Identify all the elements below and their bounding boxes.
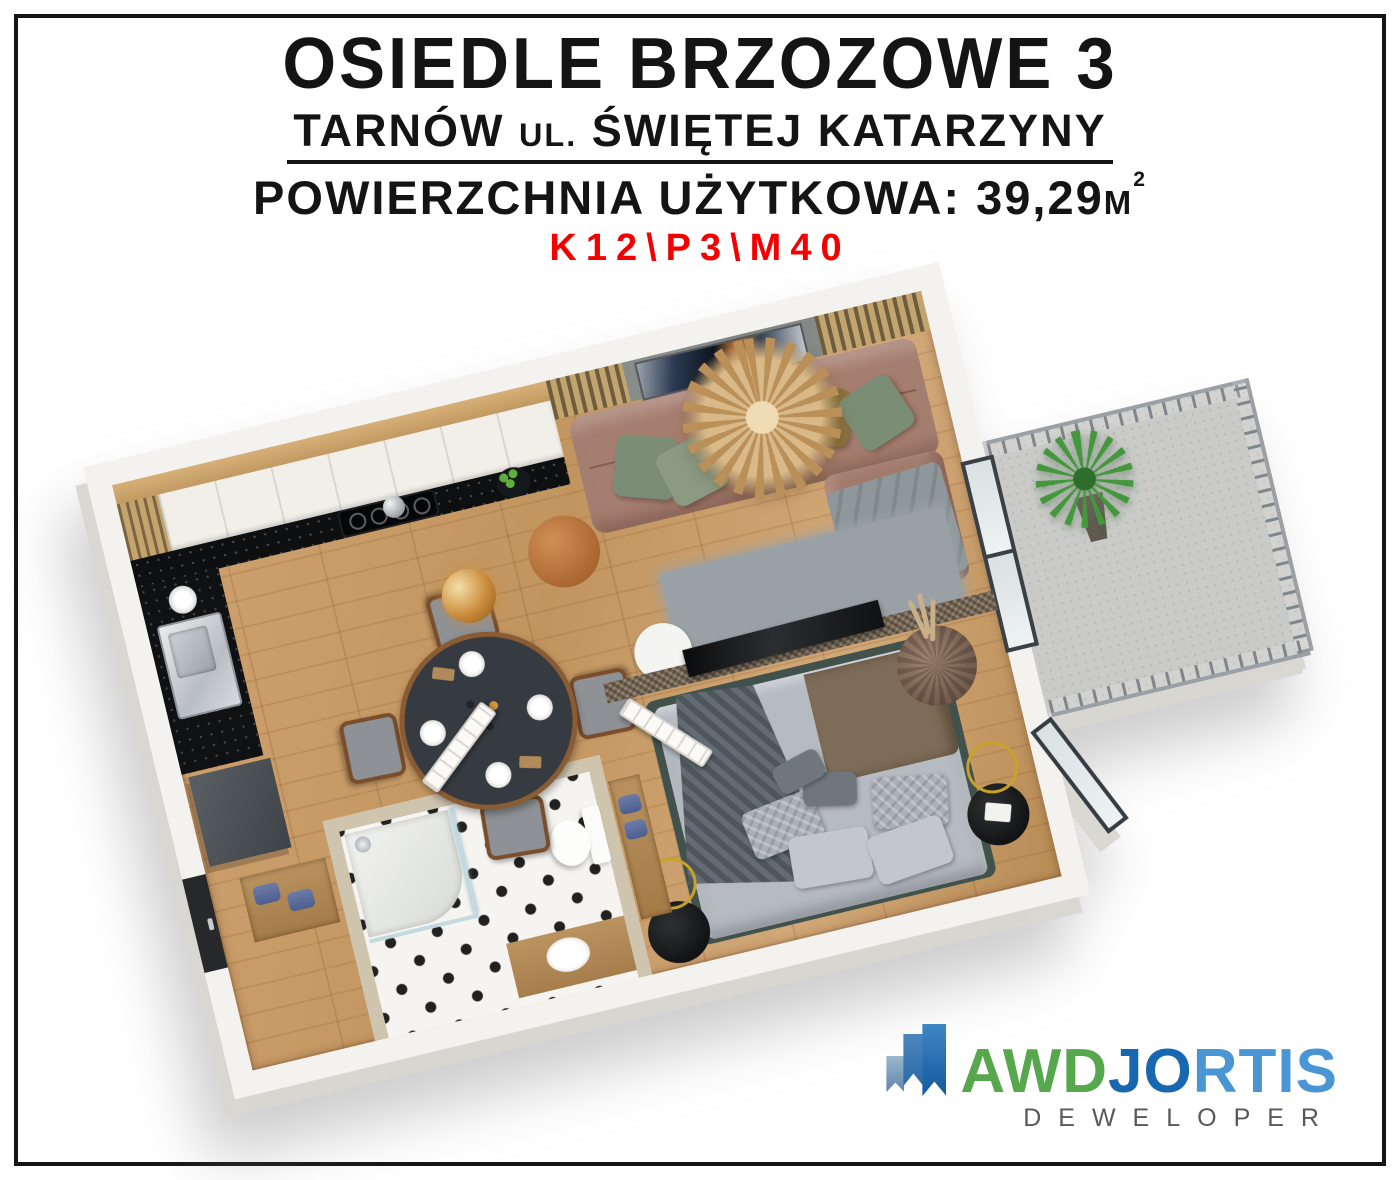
burner-icon bbox=[412, 496, 432, 516]
brand-name: AWDJORTIS bbox=[960, 1043, 1338, 1102]
plate bbox=[417, 717, 448, 748]
plate bbox=[483, 759, 514, 790]
flag-shape bbox=[886, 1056, 904, 1092]
developer-logo: AWDJORTIS DEWELOPER bbox=[908, 1024, 1338, 1134]
plate bbox=[456, 648, 487, 679]
flag-shape bbox=[903, 1034, 923, 1086]
bedside-book bbox=[984, 802, 1011, 822]
flag-shape bbox=[922, 1024, 946, 1096]
floorplan-scene bbox=[18, 18, 1382, 1162]
brand-part-rtis: RTIS bbox=[1193, 1037, 1338, 1106]
apple bbox=[505, 478, 516, 489]
apartment-3d-view bbox=[83, 197, 1363, 1100]
stepped-flags-growth-icon bbox=[886, 1024, 952, 1102]
burner-icon bbox=[348, 511, 368, 531]
poster-border: OSIEDLE BRZOZOWE 3 TARNÓW UL. ŚWIĘTEJ KA… bbox=[14, 14, 1386, 1166]
dining-chair bbox=[338, 711, 408, 785]
brand-part-jo: JO bbox=[1108, 1037, 1193, 1106]
bottle bbox=[465, 700, 475, 710]
brand-part-awd: AWD bbox=[960, 1037, 1108, 1106]
blue-towel bbox=[617, 793, 643, 816]
plate bbox=[524, 692, 555, 723]
brand-subtitle: DEWELOPER bbox=[908, 1104, 1338, 1133]
napkin bbox=[519, 756, 541, 769]
blue-towel bbox=[623, 818, 649, 841]
blue-towel bbox=[286, 888, 316, 913]
napkin bbox=[432, 667, 455, 681]
dried-sprig bbox=[930, 599, 935, 641]
apple bbox=[508, 468, 519, 479]
blue-towel bbox=[252, 882, 282, 907]
